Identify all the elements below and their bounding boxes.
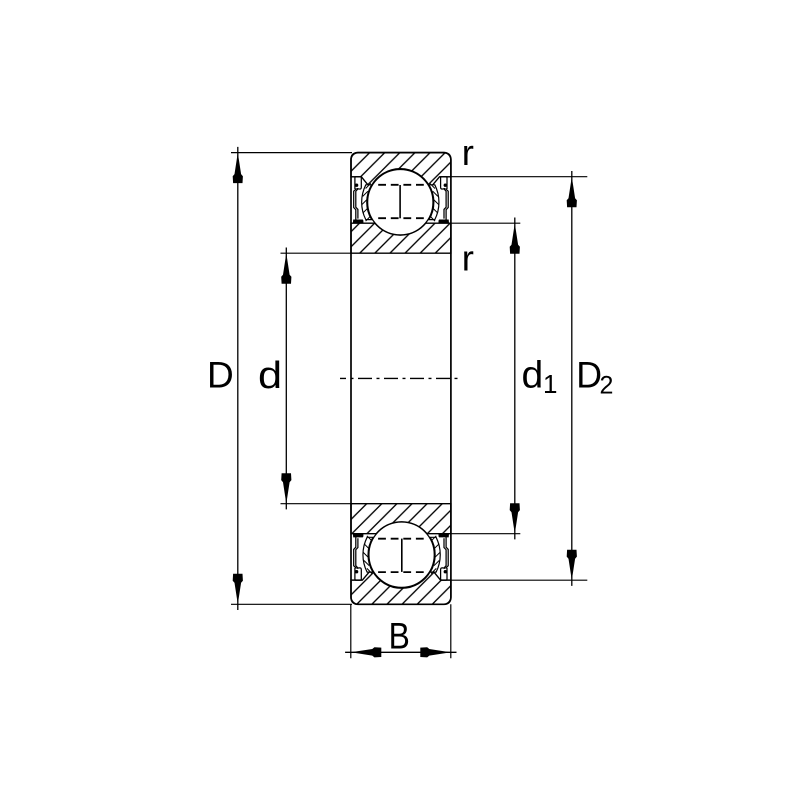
- svg-text:d: d: [258, 355, 282, 397]
- svg-text:D: D: [576, 354, 602, 395]
- svg-text:d: d: [522, 355, 544, 397]
- svg-text:r: r: [462, 132, 474, 173]
- svg-text:B: B: [389, 615, 410, 656]
- svg-text:2: 2: [600, 372, 614, 400]
- svg-text:1: 1: [543, 369, 557, 399]
- svg-text:r: r: [462, 237, 474, 278]
- svg-text:D: D: [207, 355, 234, 396]
